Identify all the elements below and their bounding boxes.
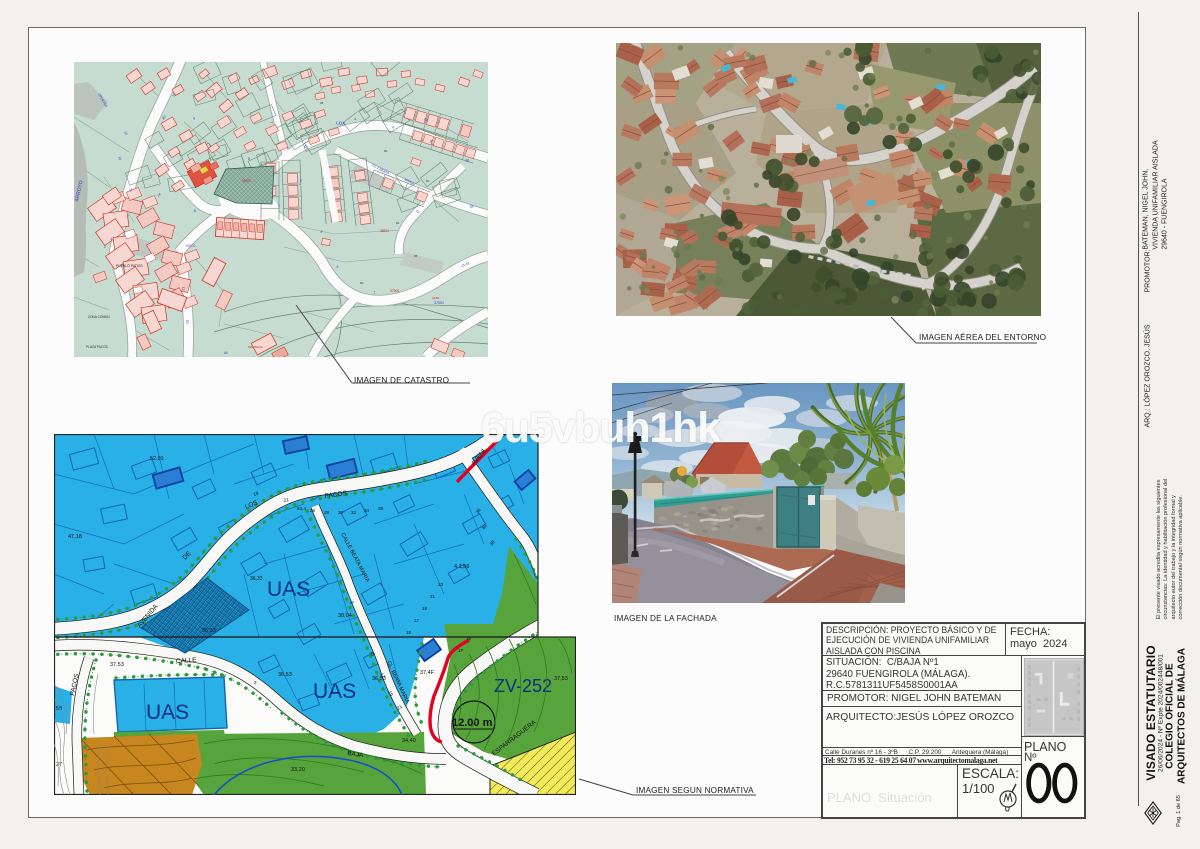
svg-text:15: 15 <box>406 630 412 635</box>
svg-text:DL: DL <box>396 221 400 225</box>
svg-text:27: 27 <box>56 762 62 768</box>
svg-text:ZV-252: ZV-252 <box>494 676 552 696</box>
svg-text:4.1,56: 4.1,56 <box>454 564 469 570</box>
svg-text:33,20: 33,20 <box>291 767 305 773</box>
svg-text:DL: DL <box>426 179 430 183</box>
svg-text:DL: DL <box>384 149 388 153</box>
svg-text:1F: 1F <box>458 648 464 653</box>
svg-text:UAS: UAS <box>146 701 189 724</box>
svg-text:1: 1 <box>278 204 280 208</box>
svg-text:34: 34 <box>364 508 370 513</box>
svg-text:34,40: 34,40 <box>402 738 416 744</box>
svg-text:36,53: 36,53 <box>278 672 292 678</box>
svg-text:21: 21 <box>430 594 436 599</box>
svg-text:6: 6 <box>194 209 196 213</box>
svg-text:52,01: 52,01 <box>150 456 164 462</box>
svg-text:26: 26 <box>310 508 316 513</box>
svg-text:ZONA COMUN: ZONA COMUN <box>88 315 110 319</box>
svg-text:37,53: 37,53 <box>554 676 568 682</box>
svg-text:63,4: 63,4 <box>297 506 306 511</box>
svg-text:30: 30 <box>338 510 344 515</box>
svg-text:DL: DL <box>360 281 364 285</box>
svg-text:19: 19 <box>466 636 472 641</box>
svg-text:2: 2 <box>254 680 257 685</box>
svg-text:36: 36 <box>378 506 384 511</box>
svg-text:UAS: UAS <box>267 578 310 601</box>
svg-text:37001: 37001 <box>390 289 400 293</box>
svg-text:36901: 36901 <box>242 179 251 183</box>
svg-text:5: 5 <box>204 666 207 671</box>
svg-text:38,04: 38,04 <box>338 613 352 619</box>
svg-text:4: 4 <box>110 237 112 241</box>
svg-text:28: 28 <box>324 510 330 515</box>
svg-text:36901: 36901 <box>380 229 389 233</box>
svg-text:36,33: 36,33 <box>250 576 263 582</box>
svg-text:PLAZA PACOS: PLAZA PACOS <box>86 345 108 349</box>
svg-text:PUEBLO PATIOS: PUEBLO PATIOS <box>116 264 143 268</box>
svg-text:8: 8 <box>248 157 250 161</box>
svg-text:2: 2 <box>300 179 302 183</box>
svg-text:17: 17 <box>414 618 420 623</box>
svg-text:19: 19 <box>422 606 428 611</box>
svg-text:2: 2 <box>104 245 106 249</box>
svg-text:37,53: 37,53 <box>110 662 124 668</box>
svg-text:36,33: 36,33 <box>202 628 216 634</box>
svg-text:32: 32 <box>351 510 357 515</box>
svg-text:05: 05 <box>320 101 324 105</box>
svg-text:47,18: 47,18 <box>68 534 82 540</box>
svg-text:UAS: UAS <box>313 680 356 703</box>
svg-text:37,4F: 37,4F <box>420 670 435 676</box>
svg-text:50003: 50003 <box>186 244 196 248</box>
svg-text:CALLE: CALLE <box>176 657 198 665</box>
svg-text:23: 23 <box>438 582 444 587</box>
svg-text:MANTECA: MANTECA <box>248 345 263 349</box>
svg-text:06: 06 <box>414 254 418 258</box>
